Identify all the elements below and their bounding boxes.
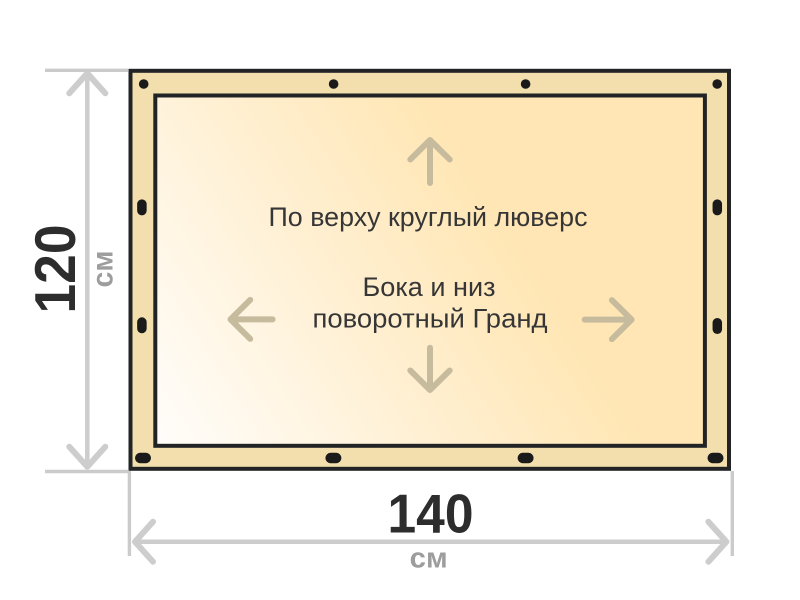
svg-text:см: см xyxy=(410,543,448,575)
svg-text:140: 140 xyxy=(388,484,474,545)
svg-text:По верху круглый люверс: По верху круглый люверс xyxy=(269,202,588,232)
svg-text:120: 120 xyxy=(24,225,88,314)
svg-text:Бока и низ: Бока и низ xyxy=(363,272,496,302)
svg-text:см: см xyxy=(86,251,119,288)
svg-text:поворотный Гранд: поворотный Гранд xyxy=(313,304,549,334)
